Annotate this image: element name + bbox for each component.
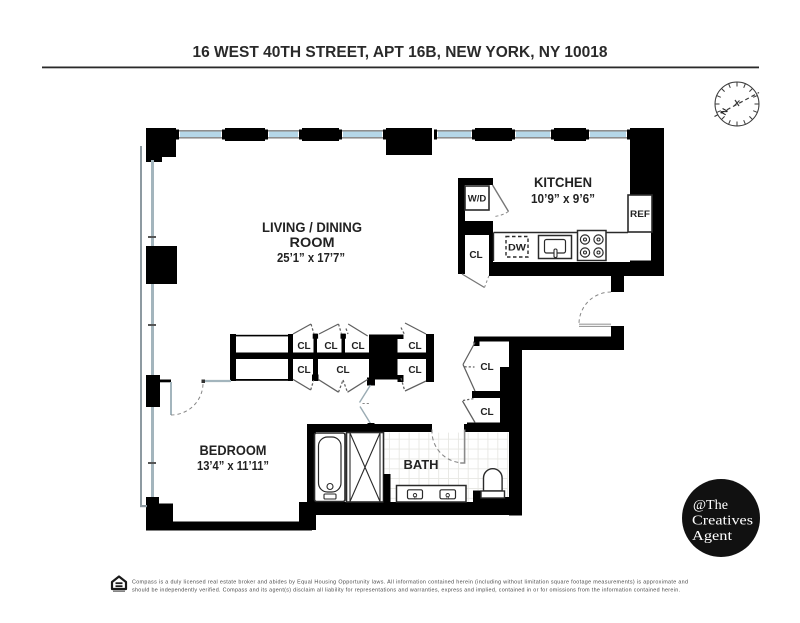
svg-text:LIVING / DINING: LIVING / DINING: [262, 219, 362, 235]
svg-text:W/D: W/D: [468, 194, 487, 205]
svg-text:CL: CL: [336, 365, 349, 376]
svg-text:CL: CL: [324, 341, 337, 352]
svg-text:Creatives: Creatives: [692, 514, 753, 529]
svg-text:CL: CL: [351, 341, 364, 352]
svg-text:Compass is a duly licensed rea: Compass is a duly licensed real estate b…: [132, 579, 688, 585]
svg-text:BEDROOM: BEDROOM: [200, 442, 267, 458]
svg-text:should be independently verifi: should be independently verified. Compas…: [132, 587, 680, 593]
svg-text:DW: DW: [508, 243, 526, 254]
svg-text:CL: CL: [408, 365, 421, 376]
svg-text:Agent: Agent: [692, 529, 732, 544]
svg-text:16 WEST 40TH STREET, APT 16B,: 16 WEST 40TH STREET, APT 16B, NEW YORK, …: [193, 44, 608, 61]
svg-text:ROOM: ROOM: [290, 234, 335, 250]
svg-text:10’9” x 9’6”: 10’9” x 9’6”: [531, 191, 595, 206]
svg-text:CL: CL: [480, 362, 493, 373]
svg-text:REF: REF: [630, 209, 650, 220]
svg-text:CL: CL: [480, 407, 493, 418]
svg-text:BATH: BATH: [404, 458, 439, 472]
svg-text:CL: CL: [408, 341, 421, 352]
svg-text:13’4” x 11’11”: 13’4” x 11’11”: [197, 458, 269, 473]
svg-text:KITCHEN: KITCHEN: [534, 174, 592, 190]
svg-text:CL: CL: [297, 365, 310, 376]
svg-text:CL: CL: [469, 250, 482, 261]
svg-text:@The: @The: [693, 498, 728, 513]
svg-text:CL: CL: [297, 341, 310, 352]
svg-text:25’1” x 17’7”: 25’1” x 17’7”: [277, 250, 345, 265]
